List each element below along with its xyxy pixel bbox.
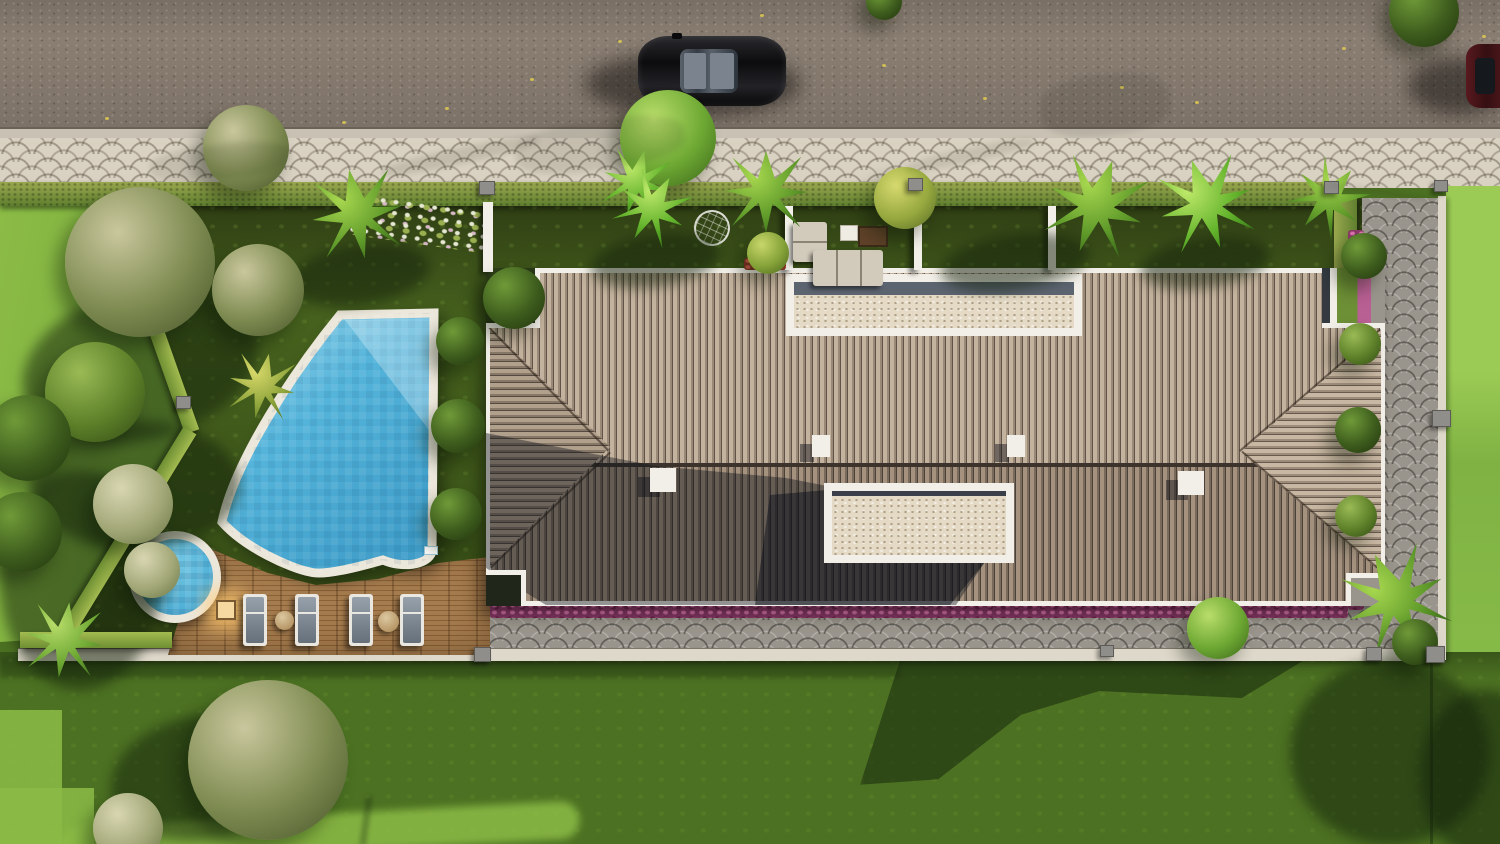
deck-lamp (216, 600, 236, 620)
sun-lounger (295, 594, 319, 646)
fence-post (908, 178, 923, 191)
tree (1339, 323, 1381, 365)
leaf-speck (1482, 35, 1486, 38)
red-car (1466, 44, 1500, 108)
patio-side-table (840, 225, 858, 241)
chimney (812, 435, 830, 457)
lounger-backrest-line (246, 612, 264, 614)
chimney (650, 468, 676, 492)
fence-post (479, 181, 495, 195)
tree (188, 680, 348, 840)
courtyard-gravel (832, 491, 1006, 555)
tree (747, 232, 789, 274)
lounger-cushion (403, 597, 421, 643)
leaf-speck (760, 14, 764, 17)
sunroof (710, 53, 734, 89)
fence-post (1100, 645, 1114, 657)
patio-coffee-table (858, 226, 888, 247)
leaf-speck (445, 107, 449, 110)
leaf-speck (342, 121, 346, 124)
leaf-speck (882, 64, 886, 67)
pool-skimmer (424, 546, 438, 555)
fence-post (1432, 410, 1451, 427)
fence-post (1426, 646, 1445, 663)
car-roof-glass (680, 49, 738, 93)
tree (874, 167, 936, 229)
outdoor-sofa (813, 250, 883, 286)
palm-tree (725, 151, 807, 233)
villa-house (486, 268, 1385, 606)
house-corner-step (1322, 268, 1385, 328)
tree (430, 488, 482, 540)
tree (124, 542, 180, 598)
sun-lounger (243, 594, 267, 646)
round-side-table (275, 611, 294, 630)
lounger-cushion (246, 597, 264, 643)
chimney (1007, 435, 1025, 457)
chimney (1178, 471, 1204, 495)
round-side-table (378, 611, 399, 632)
lounger-backrest-line (352, 612, 370, 614)
fence-post (1366, 647, 1382, 661)
windshield (684, 53, 706, 89)
lounger-cushion (298, 597, 316, 643)
tree (431, 399, 485, 453)
tree (483, 267, 545, 329)
leaf-speck (1342, 47, 1346, 50)
courtyard-edge-band (832, 491, 1006, 496)
tree (1335, 407, 1381, 453)
aerial-villa-render (0, 0, 1500, 844)
leaf-speck (983, 97, 987, 100)
garden-wall-stub (483, 202, 493, 272)
tree (1335, 495, 1377, 537)
lounger-backrest-line (298, 612, 316, 614)
red-car-glass (1475, 58, 1495, 94)
sun-lounger (400, 594, 424, 646)
side-mirror (672, 33, 682, 39)
tree (1187, 597, 1249, 659)
central-roof-courtyard (824, 483, 1014, 563)
house-entry-notch (486, 570, 526, 606)
tree (436, 317, 484, 365)
fence-post (1434, 180, 1448, 192)
leaf-speck (530, 78, 534, 81)
fence-post (474, 647, 491, 662)
tree (65, 187, 215, 337)
tree (93, 464, 173, 544)
leaf-speck (618, 40, 622, 43)
sun-lounger (349, 594, 373, 646)
lounger-backrest-line (403, 612, 421, 614)
tree (1341, 233, 1387, 279)
right-boundary-wall (1438, 196, 1446, 660)
lounger-cushion (352, 597, 370, 643)
fence-post (176, 396, 191, 409)
leaf-speck (105, 117, 109, 120)
tree (212, 244, 304, 336)
leaf-speck (1195, 101, 1199, 104)
